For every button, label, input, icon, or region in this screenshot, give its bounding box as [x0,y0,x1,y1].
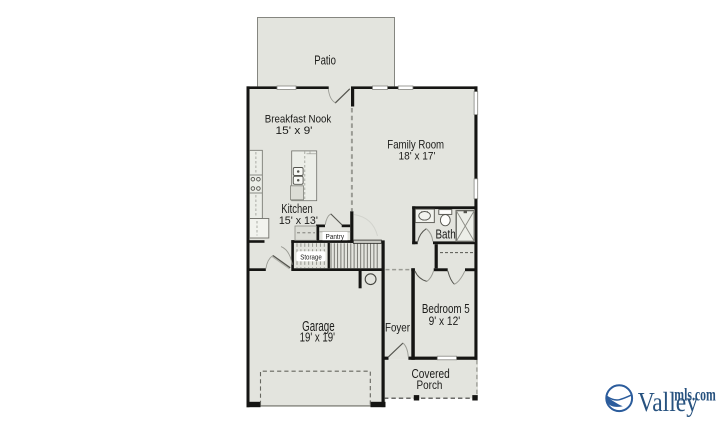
svg-text:Pantry: Pantry [326,234,345,241]
svg-text:Family Room: Family Room [387,137,444,151]
svg-text:15' x 9': 15' x 9' [276,125,313,137]
svg-text:Foyer: Foyer [385,322,410,335]
svg-text:mls.com: mls.com [674,385,716,405]
svg-text:Patio: Patio [314,53,336,68]
svg-text:Porch: Porch [417,378,443,392]
svg-text:Storage: Storage [300,255,322,262]
svg-text:18' x 17': 18' x 17' [399,150,436,162]
svg-text:Bath: Bath [436,228,456,242]
svg-text:9' x 12': 9' x 12' [429,314,461,328]
svg-text:15' x 13': 15' x 13' [279,215,318,227]
svg-text:Kitchen: Kitchen [281,201,312,216]
svg-text:19' x 19': 19' x 19' [300,330,335,345]
svg-text:Breakfast Nook: Breakfast Nook [265,114,332,126]
